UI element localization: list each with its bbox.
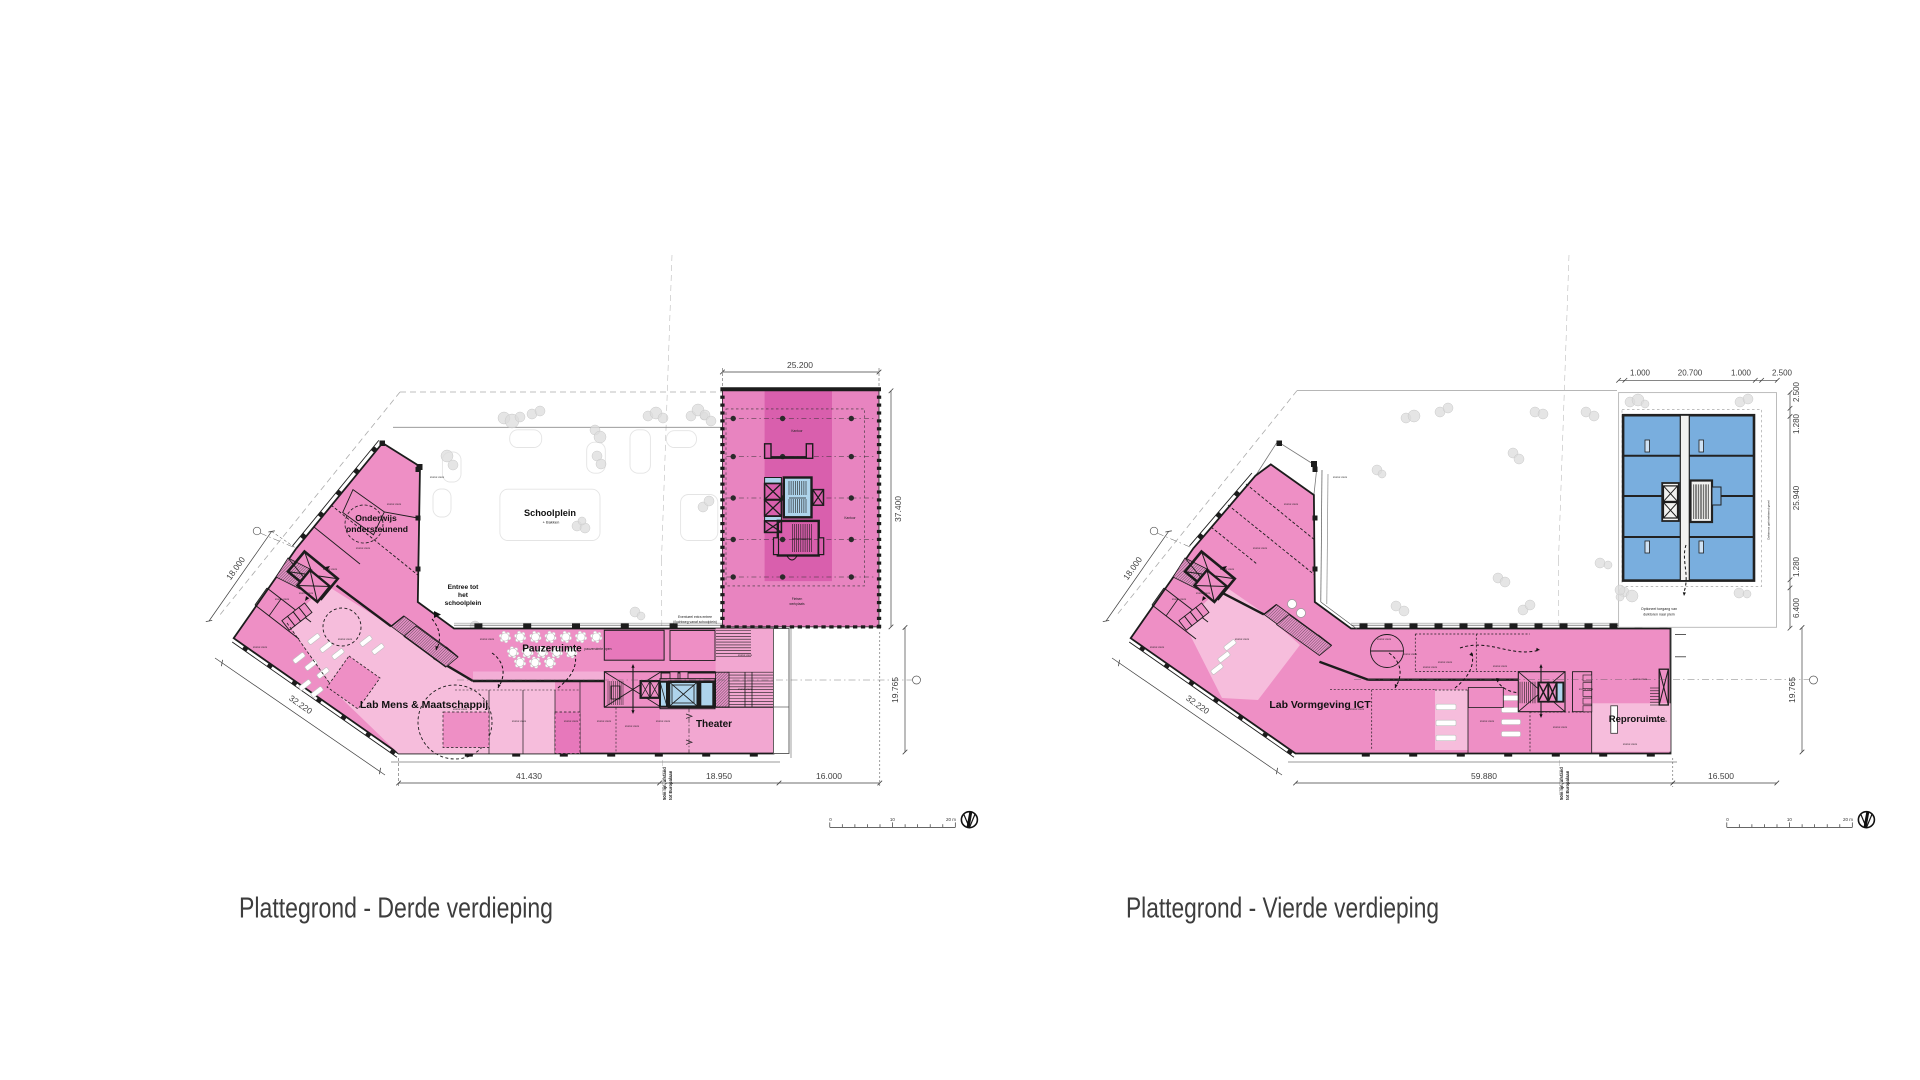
- svg-text:xxxxx xxxx: xxxxx xxxx: [356, 546, 371, 550]
- svg-text:xxxxx xxxx: xxxxx xxxx: [453, 707, 468, 711]
- svg-text:10: 10: [1787, 817, 1793, 822]
- svg-text:16.500: 16.500: [1708, 771, 1734, 781]
- svg-text:6.400: 6.400: [1792, 597, 1801, 618]
- svg-text:18.000: 18.000: [1121, 555, 1144, 582]
- svg-text:het: het: [458, 592, 469, 599]
- svg-text:Lab Mens & Maatschappij: Lab Mens & Maatschappij: [360, 699, 488, 711]
- svg-text:xxxxx xxxx: xxxxx xxxx: [1377, 637, 1392, 641]
- svg-text:50m lijn, afstand: 50m lijn, afstand: [662, 767, 667, 800]
- svg-text:Eventueel extra entree: Eventueel extra entree: [678, 615, 712, 619]
- svg-text:ondersteunend: ondersteunend: [346, 524, 408, 534]
- svg-text:xxxxx xxxx: xxxxx xxxx: [1438, 660, 1453, 664]
- svg-text:xxxxx xxxx: xxxxx xxxx: [1623, 742, 1638, 746]
- svg-text:xxxxx xxxx: xxxxx xxxx: [1553, 725, 1568, 729]
- svg-text:xxxxx xxxx: xxxxx xxxx: [1284, 502, 1299, 506]
- svg-text:xxxxx xxxx: xxxxx xxxx: [338, 637, 353, 641]
- svg-text:pauzeruimte open: pauzeruimte open: [584, 647, 611, 651]
- svg-text:xxxxx xxxx: xxxxx xxxx: [299, 591, 314, 595]
- svg-text:19.765: 19.765: [1787, 677, 1797, 703]
- svg-text:1.000: 1.000: [1731, 369, 1752, 378]
- svg-text:xxxxx xxxx: xxxxx xxxx: [1333, 475, 1348, 479]
- svg-text:1.280: 1.280: [1792, 556, 1801, 577]
- svg-text:xxxxx xxxx: xxxxx xxxx: [738, 653, 753, 657]
- svg-text:Kantoor: Kantoor: [791, 429, 803, 433]
- svg-text:1.000: 1.000: [1630, 369, 1651, 378]
- svg-text:Pauzeruimte: Pauzeruimte: [522, 644, 582, 655]
- svg-text:20 m: 20 m: [1843, 817, 1853, 822]
- svg-text:xxxxx xxxx: xxxxx xxxx: [1350, 707, 1365, 711]
- svg-text:xxxxx xxxx: xxxxx xxxx: [430, 475, 445, 479]
- svg-text:37.400: 37.400: [893, 496, 903, 522]
- svg-text:xxxxx xxxx: xxxxx xxxx: [1220, 567, 1235, 571]
- svg-text:0: 0: [829, 817, 832, 822]
- svg-text:Optioneel toegang van: Optioneel toegang van: [1641, 607, 1677, 611]
- svg-text:50m lijn, afstand: 50m lijn, afstand: [1559, 767, 1564, 800]
- svg-text:19.765: 19.765: [890, 677, 900, 703]
- svg-text:duiktoren naar plein: duiktoren naar plein: [1643, 613, 1675, 617]
- svg-text:2.500: 2.500: [1792, 381, 1801, 402]
- svg-text:xxxxx xxxx: xxxxx xxxx: [625, 724, 640, 728]
- svg-text:xxxxx xxxx: xxxxx xxxx: [253, 645, 268, 649]
- svg-text:xxxxx xxxx: xxxxx xxxx: [323, 567, 338, 571]
- svg-text:20 m: 20 m: [946, 817, 956, 822]
- svg-text:xxxxx xxxx: xxxxx xxxx: [1579, 687, 1594, 691]
- svg-text:xxxxx xxxx: xxxxx xxxx: [275, 597, 290, 601]
- svg-text:1.280: 1.280: [1792, 413, 1801, 434]
- svg-text:xxxxx xxxx: xxxxx xxxx: [597, 719, 612, 723]
- svg-text:Entree tot: Entree tot: [448, 584, 480, 591]
- svg-text:18.000: 18.000: [224, 555, 247, 582]
- svg-text:Onderwijs: Onderwijs: [355, 513, 397, 523]
- svg-text:2.500: 2.500: [1772, 369, 1793, 378]
- svg-text:schoolplein: schoolplein: [445, 600, 482, 607]
- svg-text:0: 0: [1726, 817, 1729, 822]
- svg-text:xxxxx xxxx: xxxxx xxxx: [564, 719, 579, 723]
- svg-text:xxxxx xxxx: xxxxx xxxx: [1253, 546, 1268, 550]
- svg-text:xxxxx xxxx: xxxxx xxxx: [1403, 652, 1418, 656]
- svg-text:xxxxx xxxx: xxxxx xxxx: [1172, 597, 1187, 601]
- svg-text:Plattegrond - Vierde verdiepin: Plattegrond - Vierde verdieping: [1126, 893, 1439, 925]
- svg-text:xxxxx xxxx: xxxxx xxxx: [1480, 719, 1495, 723]
- svg-text:xxxxx xxxx: xxxxx xxxx: [387, 502, 402, 506]
- svg-text:Kantoor: Kantoor: [844, 516, 856, 520]
- svg-text:xxxxx xxxx: xxxxx xxxx: [1196, 591, 1211, 595]
- svg-text:xxxxx xxxx: xxxxx xxxx: [656, 719, 671, 723]
- svg-text:(/luchtweg vanaf schoolplein): (/luchtweg vanaf schoolplein): [673, 620, 717, 624]
- svg-text:xxxxx xxxx: xxxxx xxxx: [1423, 665, 1438, 669]
- svg-text:xxxxx xxxx: xxxxx xxxx: [738, 687, 753, 691]
- svg-text:Schoolplein: Schoolplein: [524, 508, 576, 518]
- svg-text:xxxxx xxxx: xxxxx xxxx: [1493, 664, 1508, 668]
- svg-text:xxxxx xxxx: xxxxx xxxx: [1150, 645, 1165, 649]
- svg-text:xxxxx xxxx: xxxxx xxxx: [512, 719, 527, 723]
- svg-text:werkplaats: werkplaats: [789, 602, 805, 606]
- svg-text:59.880: 59.880: [1471, 771, 1497, 781]
- svg-text:Theater: Theater: [696, 719, 732, 730]
- svg-text:xxxxx xxxx: xxxxx xxxx: [480, 637, 495, 641]
- svg-text:10: 10: [890, 817, 896, 822]
- svg-text:Fietsen: Fietsen: [792, 597, 803, 601]
- svg-text:tot Europalaan: tot Europalaan: [668, 770, 673, 800]
- svg-text:25.200: 25.200: [787, 360, 813, 370]
- svg-text:18.950: 18.950: [706, 771, 732, 781]
- svg-text:41.430: 41.430: [516, 771, 542, 781]
- svg-text:tot Europalaan: tot Europalaan: [1565, 770, 1570, 800]
- svg-text:16.000: 16.000: [816, 771, 842, 781]
- svg-text:+ Bakken: + Bakken: [543, 520, 560, 525]
- svg-text:Dakterras geïntrekteerd gevel: Dakterras geïntrekteerd gevel: [1767, 500, 1771, 540]
- svg-text:25.940: 25.940: [1792, 485, 1801, 510]
- svg-text:20.700: 20.700: [1678, 369, 1703, 378]
- svg-text:Plattegrond - Derde verdieping: Plattegrond - Derde verdieping: [239, 893, 553, 925]
- svg-text:xxxxx xxxx: xxxxx xxxx: [1633, 677, 1648, 681]
- svg-text:xxxxx xxxx: xxxxx xxxx: [1653, 719, 1668, 723]
- svg-text:xxxxx xxxx: xxxxx xxxx: [1235, 637, 1250, 641]
